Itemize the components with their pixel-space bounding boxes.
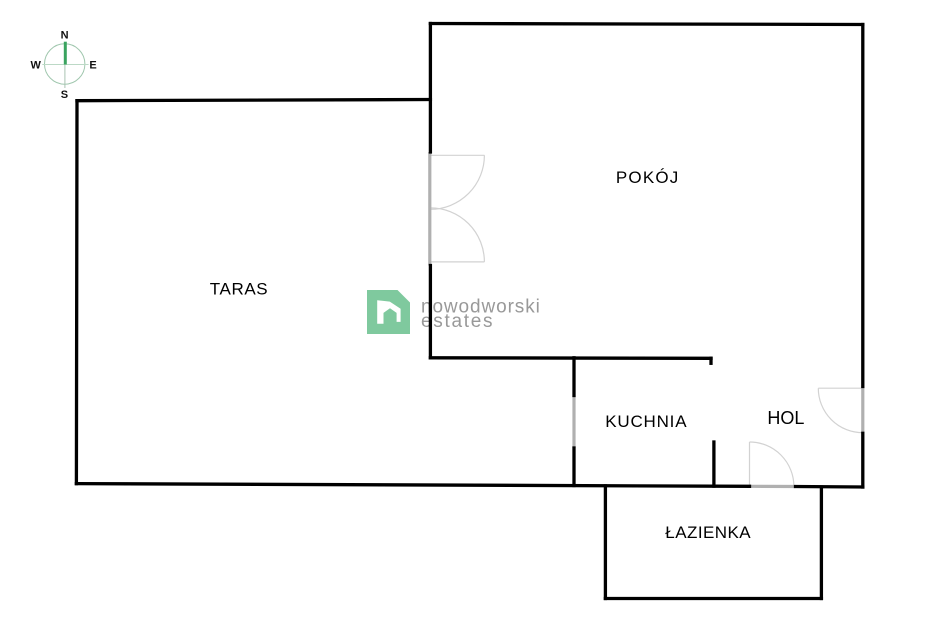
svg-text:E: E — [89, 59, 96, 71]
svg-text:HOL: HOL — [767, 408, 804, 428]
svg-text:TARAS: TARAS — [210, 280, 268, 299]
svg-text:W: W — [31, 60, 42, 72]
svg-text:ŁAZIENKA: ŁAZIENKA — [665, 523, 751, 542]
svg-text:S: S — [61, 89, 68, 101]
svg-text:POKÓJ: POKÓJ — [616, 168, 680, 187]
svg-text:N: N — [61, 29, 69, 41]
svg-text:KUCHNIA: KUCHNIA — [605, 412, 687, 431]
